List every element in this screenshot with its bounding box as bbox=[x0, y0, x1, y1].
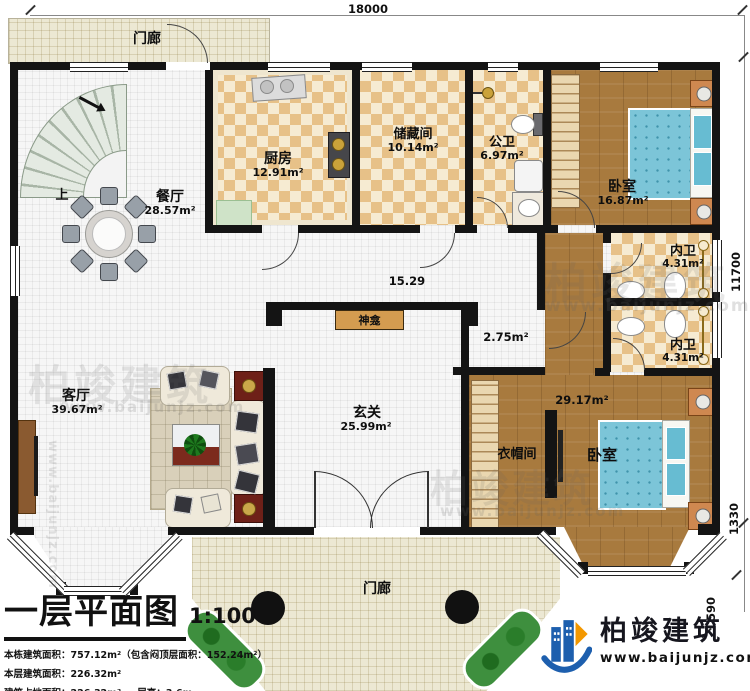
wall-corridor-a bbox=[205, 225, 262, 233]
wall-bath-bedroom bbox=[543, 70, 551, 233]
window-bedroom-top bbox=[600, 62, 658, 72]
dining-chair bbox=[100, 263, 118, 281]
shrine-box: 神龛 bbox=[335, 310, 404, 330]
wall-left bbox=[10, 62, 18, 535]
ensuite-lower-toilet bbox=[664, 310, 686, 338]
wall-storage-bath bbox=[465, 70, 473, 233]
bedroom-hall-floor bbox=[545, 233, 603, 375]
label-kitchen-area: 12.91m² bbox=[252, 167, 303, 178]
label-living-area: 39.67m² bbox=[51, 404, 102, 415]
wall-innerhall-bottom bbox=[453, 367, 545, 375]
window-ensuite-lower bbox=[712, 302, 722, 358]
floor-plan: 18000 11700 1330 590 bbox=[0, 0, 750, 691]
label-bedroom-top-area: 16.87m² bbox=[597, 195, 648, 206]
sofa-pillow bbox=[198, 369, 219, 389]
label-bedroom-top: 卧室 bbox=[608, 180, 636, 194]
scale-label: 1:100 bbox=[189, 604, 256, 628]
window-storage bbox=[362, 62, 412, 72]
wall-ensuite-bottom-a bbox=[595, 368, 610, 376]
dim-right-bay-label: 1330 bbox=[727, 494, 741, 544]
label-public-bath-area: 6.97m² bbox=[480, 150, 523, 161]
wall-foyer-cloak bbox=[461, 375, 469, 527]
label-ensuite-upper: 内卫 bbox=[670, 245, 696, 258]
toilet-public bbox=[511, 115, 535, 134]
dining-table-top bbox=[92, 217, 126, 251]
bed-bottom-mattress bbox=[598, 420, 666, 510]
side-table-top bbox=[234, 371, 264, 401]
bed-top-cushion bbox=[693, 152, 712, 186]
label-stairs-up: 上 bbox=[55, 189, 68, 202]
coffee-table-plant bbox=[184, 434, 206, 456]
bath-sink bbox=[518, 199, 540, 217]
bed-bottom-cushion bbox=[666, 463, 686, 496]
shrine-label: 神龛 bbox=[359, 315, 381, 326]
label-corridor-area: 15.29 bbox=[389, 276, 425, 288]
brand-logo: 柏竣建筑 www.baijunjz.com bbox=[540, 616, 750, 678]
stove-burner bbox=[332, 158, 345, 171]
sofa-pillow bbox=[235, 442, 260, 465]
bed-top-cushion bbox=[693, 115, 712, 149]
wall-bottom-living bbox=[168, 527, 314, 535]
wall-ensuite-left-a bbox=[603, 233, 611, 243]
ensuite-upper-toilet bbox=[664, 272, 686, 300]
dining-chair bbox=[100, 187, 118, 205]
window-public-bath bbox=[488, 62, 518, 72]
label-dining: 餐厅 bbox=[156, 190, 184, 204]
wall-living-foyer-stub bbox=[263, 368, 275, 527]
side-table-bottom bbox=[234, 494, 264, 523]
bed-top-mattress bbox=[628, 108, 694, 200]
label-public-bath: 公卫 bbox=[489, 136, 515, 149]
label-ensuite-lower-area: 4.31m² bbox=[662, 353, 703, 364]
window-left-wall bbox=[10, 246, 20, 296]
label-inner-hall-area: 2.75m² bbox=[483, 332, 528, 344]
kitchen-sink-bowl bbox=[260, 80, 274, 94]
wall-kitchen-left bbox=[205, 70, 213, 233]
dim-right-main-label: 11700 bbox=[729, 242, 743, 302]
title-underline bbox=[4, 637, 186, 641]
dim-tick bbox=[731, 570, 742, 581]
brand-name: 柏竣建筑 bbox=[600, 616, 750, 647]
stat-line-1: 本栋建筑面积：757.12m²（包含闷顶层面积：152.24m²） bbox=[4, 647, 264, 661]
wall-bedroom-top-a bbox=[551, 225, 558, 233]
label-porch-top: 门廊 bbox=[133, 32, 161, 46]
wardrobe-cloakroom bbox=[471, 380, 499, 528]
label-dining-area: 28.57m² bbox=[144, 205, 195, 216]
label-cloakroom: 衣帽间 bbox=[497, 448, 536, 461]
towel-rail-knob bbox=[698, 240, 709, 251]
bedroom-tv-screen bbox=[558, 430, 563, 482]
label-bedroom-bottom-area: 29.17m² bbox=[555, 395, 608, 407]
wall-shrine bbox=[266, 302, 478, 310]
label-ensuite-lower: 内卫 bbox=[670, 339, 696, 352]
page-title: 一层平面图 bbox=[4, 584, 179, 633]
stat-line-3: 建筑占地面积：226.32m² bbox=[4, 685, 121, 691]
sofa-pillow bbox=[173, 495, 193, 515]
wall-ensuite-bottom-b bbox=[644, 368, 712, 376]
window-dining bbox=[70, 62, 128, 72]
bed-bottom-cushion bbox=[666, 427, 686, 460]
wall-kitchen-storage bbox=[352, 70, 360, 233]
dim-tick bbox=[737, 5, 748, 16]
porch-column bbox=[445, 590, 479, 624]
brand-url: www.baijunjz.com bbox=[600, 650, 750, 666]
sofa-pillow bbox=[235, 411, 260, 434]
label-living: 客厅 bbox=[62, 389, 90, 403]
brand-logo-icon bbox=[540, 616, 592, 678]
dining-chair bbox=[138, 225, 156, 243]
wall-shrine-stub-right bbox=[462, 302, 478, 326]
towel-rail-knob bbox=[698, 306, 709, 317]
label-porch-bottom: 门廊 bbox=[363, 582, 391, 596]
title-block: 一层平面图 1:100 本栋建筑面积：757.12m²（包含闷顶层面积：152.… bbox=[4, 584, 264, 691]
stat-line-4: 层高：3.6m bbox=[137, 685, 192, 691]
wall-ensuite-left-b bbox=[603, 273, 611, 372]
label-ensuite-upper-area: 4.31m² bbox=[662, 259, 703, 270]
wall-corridor-hall bbox=[537, 233, 545, 310]
bay-window-bedroom-bottom bbox=[588, 566, 686, 576]
wall-corridor-c bbox=[455, 225, 477, 233]
wall-shrine-stub-left bbox=[266, 302, 282, 326]
label-storage-area: 10.14m² bbox=[387, 142, 438, 153]
wall-ensuite-divider bbox=[603, 298, 712, 306]
kitchen-sink-bowl bbox=[280, 79, 294, 93]
dim-tick bbox=[25, 5, 36, 16]
kitchen-mat bbox=[216, 200, 252, 228]
wall-right bbox=[712, 62, 720, 528]
wall-lamp-globe bbox=[482, 87, 494, 99]
stat-line-2: 本层建筑面积：226.32m² bbox=[4, 666, 264, 680]
wall-corridor-b bbox=[298, 225, 420, 233]
label-foyer-area: 25.99m² bbox=[340, 421, 391, 432]
window-kitchen bbox=[268, 62, 330, 72]
dining-chair bbox=[62, 225, 80, 243]
bay-window-bedroom-right bbox=[683, 532, 727, 576]
sofa-pillow bbox=[167, 371, 188, 391]
wall-bottom-foyer-right bbox=[420, 527, 556, 535]
label-foyer: 玄关 bbox=[353, 406, 381, 420]
wall-bedroom-tv-partition bbox=[545, 410, 557, 498]
label-kitchen: 厨房 bbox=[264, 152, 292, 166]
washing-machine bbox=[514, 160, 543, 192]
wall-bedroom-top-b bbox=[596, 225, 720, 233]
label-bedroom-bottom: 卧室 bbox=[587, 448, 617, 463]
door-gap-top-porch bbox=[166, 62, 210, 70]
ensuite-lower-sink bbox=[617, 317, 645, 336]
dim-top-label: 18000 bbox=[348, 2, 388, 16]
stove-burner bbox=[332, 138, 345, 151]
label-storage: 储藏间 bbox=[393, 128, 432, 141]
tv-screen bbox=[34, 436, 38, 496]
wall-corridor-d bbox=[508, 225, 551, 233]
wardrobe-bedroom-top bbox=[551, 74, 580, 208]
window-ensuite-upper bbox=[712, 240, 722, 292]
